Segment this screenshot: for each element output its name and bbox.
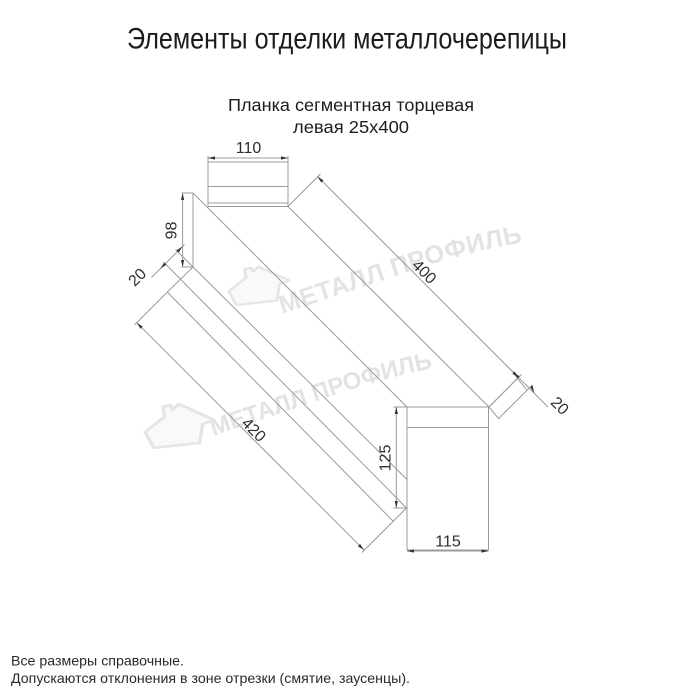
svg-text:Планка сегментная торцевая: Планка сегментная торцевая: [228, 95, 474, 115]
svg-text:125: 125: [378, 445, 395, 472]
svg-text:Все размеры справочные.: Все размеры справочные.: [11, 653, 184, 669]
svg-text:115: 115: [435, 534, 461, 551]
svg-text:Элементы отделки металлочерепи: Элементы отделки металлочерепицы: [127, 23, 567, 56]
svg-text:110: 110: [236, 140, 262, 157]
svg-text:левая 25х400: левая 25х400: [293, 117, 409, 137]
svg-text:Допускаются отклонения в зоне: Допускаются отклонения в зоне отрезки (с…: [11, 670, 410, 686]
svg-text:98: 98: [164, 222, 181, 240]
